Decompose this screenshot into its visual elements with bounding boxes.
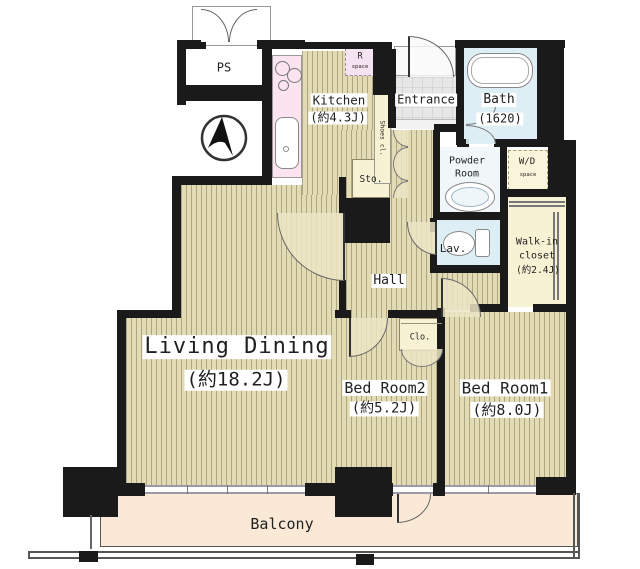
structural-column [536, 477, 576, 495]
wall [433, 212, 505, 220]
wall [503, 189, 576, 197]
bedroom1-area-label: (約8.0J) [470, 402, 543, 418]
stove-burner [287, 68, 302, 83]
shoes-closet-label: Shoes cl. [378, 120, 385, 155]
living-dining-label: Living Dining [142, 335, 331, 359]
balcony-railing-line [578, 493, 580, 559]
closet-rod [557, 212, 559, 300]
walk-in-closet-label-line2: closet [519, 252, 555, 263]
bedroom1-balcony-window [445, 485, 536, 494]
wall [388, 49, 396, 128]
living-dining-area-label: (約18.2J) [184, 370, 287, 391]
walk-in-closet-label-line1: Walk-in [516, 238, 558, 249]
wall [433, 130, 440, 218]
wall [537, 44, 564, 145]
wall [339, 280, 346, 317]
bedroom1-label: Bed Room1 [460, 379, 551, 396]
kitchen-area-label: (約4.3J) [308, 112, 367, 125]
walk-in-closet-area-label: (約2.4J) [516, 266, 560, 276]
washer-dryer-sublabel: space [520, 173, 537, 179]
balcony-label: Balcony [250, 516, 313, 532]
ps-label: PS [217, 62, 231, 75]
wall [566, 192, 576, 490]
bedroom2-area-label: (約5.2J) [350, 401, 419, 416]
bath-area-label: (1620) [476, 113, 523, 126]
refrigerator-space-label: R [357, 52, 362, 61]
washer-dryer-space-box [508, 150, 548, 190]
hall-label: Hall [371, 274, 406, 288]
wall [262, 44, 272, 185]
window-mullion [267, 485, 268, 494]
toilet-tank [475, 229, 490, 257]
balcony-railing-line [28, 551, 579, 553]
powder-room-label-line1: Powder [449, 157, 485, 168]
bath-label: Bath [481, 93, 516, 107]
window-mullion [488, 485, 489, 494]
wall [500, 189, 508, 312]
washer-dryer-label: W/D [519, 158, 535, 168]
bathtub-inner-line [471, 57, 529, 84]
balcony-railing-line [28, 557, 579, 559]
railing-post [79, 551, 98, 562]
balcony-railing-line [28, 551, 30, 559]
wall [117, 310, 126, 491]
entrance-door-arc [408, 36, 454, 77]
window-mullion [187, 485, 188, 494]
balcony-railing-line [573, 493, 575, 559]
north-arrow-icon [198, 112, 250, 164]
bedroom2-label: Bed Room2 [342, 380, 427, 396]
wall [437, 308, 445, 490]
wall [388, 310, 445, 318]
stove-burner [278, 80, 289, 91]
structural-column [345, 198, 390, 243]
window-mullion [227, 485, 228, 494]
wall [305, 483, 338, 496]
refrigerator-space-sublabel: space [352, 65, 369, 71]
wall [300, 42, 376, 49]
living-balcony-window [145, 485, 305, 494]
floor-plan: PS Kitchen (約4.3J) R space Shoes cl. Ent… [0, 0, 640, 569]
wall [117, 310, 181, 318]
wall [103, 483, 145, 496]
entrance-label: Entrance [395, 94, 457, 107]
railing-post [356, 554, 374, 565]
lavatory-label: Lav. [440, 243, 467, 255]
kitchen-sink [275, 117, 299, 169]
wall [172, 176, 181, 317]
drain-pipe-line [90, 515, 92, 549]
kitchen-label: Kitchen [311, 93, 368, 107]
wall [433, 483, 445, 496]
wall [533, 304, 576, 312]
closet-shelf-line [401, 323, 442, 324]
closet-rod [509, 205, 565, 207]
powder-room-label-line2: Room [455, 170, 479, 181]
wall [172, 176, 266, 185]
storage-label: Sto. [360, 175, 383, 185]
wall [500, 145, 507, 195]
closet-rod [509, 201, 565, 203]
wall [177, 85, 271, 101]
bedroom2-balcony-window [393, 485, 433, 494]
wall [433, 265, 508, 273]
closet-label: Clo. [410, 333, 430, 342]
powder-sink-basin [451, 187, 489, 207]
wall [372, 483, 393, 496]
kitchen-sink-drain [283, 146, 289, 152]
